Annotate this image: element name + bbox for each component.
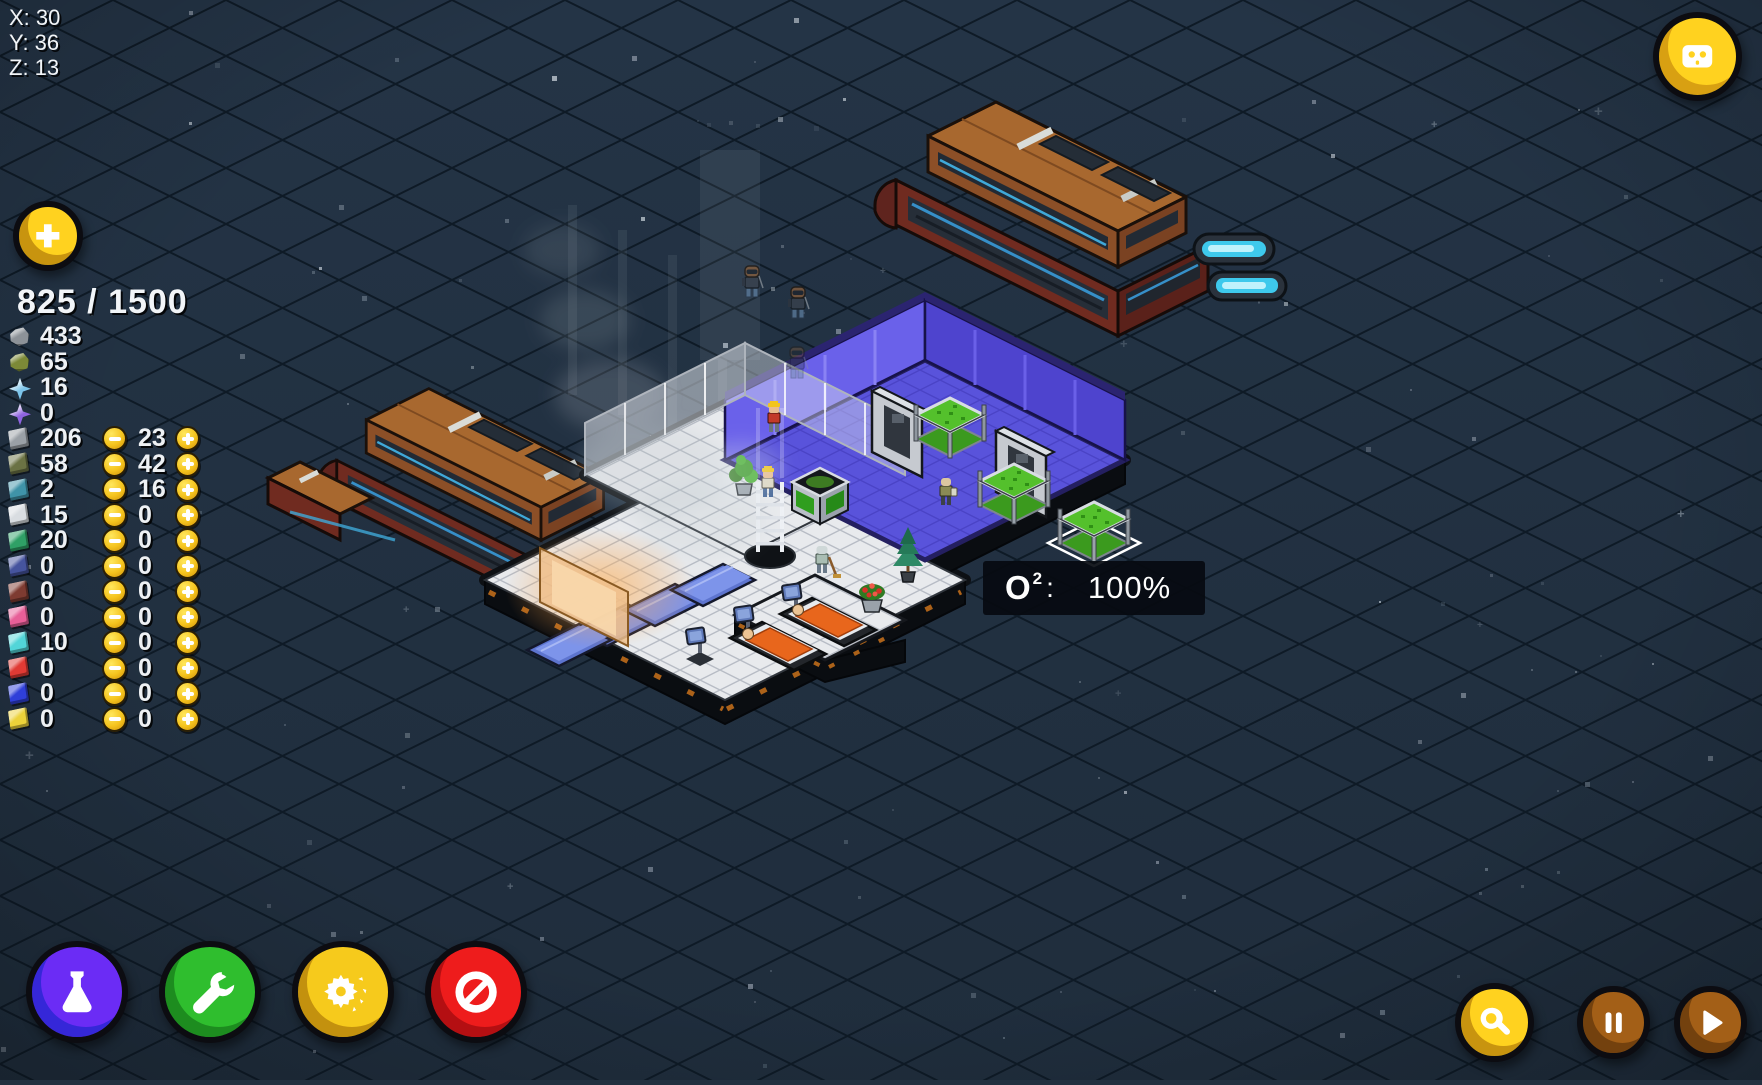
buy-coin-button[interactable]: [175, 605, 200, 630]
resource-row-organic-rock: 65: [8, 350, 200, 376]
resource-row-pink-plate: 0 0: [8, 605, 200, 631]
coordinate-y: Y: 36: [9, 30, 60, 55]
buy-coin-button[interactable]: [175, 477, 200, 502]
oxygen-value: 100%: [1088, 570, 1171, 606]
resource-icon: [8, 453, 32, 475]
sell-coin-button[interactable]: [102, 554, 127, 579]
pause-icon: [1596, 1005, 1631, 1040]
resource-row-gray-rock: 433: [8, 324, 200, 350]
resource-icon: [8, 555, 32, 577]
add-button[interactable]: [13, 201, 83, 271]
play-button[interactable]: [1674, 986, 1747, 1059]
resource-icon: [8, 326, 32, 348]
storage-capacity: 825 / 1500: [17, 283, 188, 322]
ban-icon: [450, 966, 502, 1018]
resource-icon: [8, 581, 32, 603]
sell-coin-button[interactable]: [102, 503, 127, 528]
sell-coin-button[interactable]: [102, 605, 127, 630]
flask-icon: [51, 966, 103, 1018]
resource-row-purple-crystal: 0: [8, 401, 200, 427]
resource-price: 0: [138, 705, 175, 734]
sell-coin-button[interactable]: [102, 681, 127, 706]
buy-coin-button[interactable]: [175, 579, 200, 604]
crew-button-slot: [1653, 12, 1742, 101]
magnifier-icon: [1475, 1003, 1514, 1042]
add-button-slot: [13, 201, 83, 271]
resource-icon: [8, 504, 32, 526]
build-button[interactable]: [159, 941, 261, 1043]
broken-gear-icon: [317, 966, 369, 1018]
buy-coin-button[interactable]: [175, 630, 200, 655]
resource-icon: [8, 351, 32, 373]
sell-coin-button[interactable]: [102, 630, 127, 655]
resource-icon: [8, 377, 32, 399]
buy-coin-button[interactable]: [175, 554, 200, 579]
resource-row-white-plate: 15 0: [8, 503, 200, 529]
resource-icon: [8, 657, 32, 679]
resource-row-cyan-plate: 10 0: [8, 630, 200, 656]
crew-button[interactable]: [1653, 12, 1742, 101]
sell-coin-button[interactable]: [102, 656, 127, 681]
resource-row-yellow-plate: 0 0: [8, 707, 200, 733]
coordinate-z: Z: 13: [9, 55, 60, 80]
research-button[interactable]: [26, 941, 128, 1043]
buy-coin-button[interactable]: [175, 707, 200, 732]
sell-coin-button[interactable]: [102, 452, 127, 477]
resource-row-olive-plate: 58 42: [8, 452, 200, 478]
buy-coin-button[interactable]: [175, 452, 200, 477]
oxygen-tooltip: O 2 : 100%: [983, 561, 1205, 615]
time-controls: [1577, 986, 1747, 1059]
resource-count: 0: [40, 705, 102, 734]
sell-coin-button[interactable]: [102, 579, 127, 604]
buy-coin-button[interactable]: [175, 528, 200, 553]
sell-coin-button[interactable]: [102, 426, 127, 451]
resource-icon: [8, 708, 32, 730]
resource-icon: [8, 428, 32, 450]
resource-icon: [8, 632, 32, 654]
coordinate-x: X: 30: [9, 5, 60, 30]
pause-button[interactable]: [1577, 986, 1650, 1059]
zoom-button[interactable]: [1455, 983, 1534, 1062]
cursor-coordinates: X: 30 Y: 36 Z: 13: [9, 5, 60, 80]
sell-coin-button[interactable]: [102, 707, 127, 732]
resource-icon: [8, 530, 32, 552]
sell-coin-button[interactable]: [102, 477, 127, 502]
resource-icon: [8, 683, 32, 705]
wrench-icon: [184, 966, 236, 1018]
resource-row-teal-plate: 2 16: [8, 477, 200, 503]
buy-coin-button[interactable]: [175, 656, 200, 681]
mine-button[interactable]: [292, 941, 394, 1043]
oxygen-symbol: O: [1005, 569, 1031, 607]
buy-coin-button[interactable]: [175, 681, 200, 706]
resource-row-blue-crystal: 16: [8, 375, 200, 401]
resource-trade: 0: [102, 705, 200, 734]
play-icon: [1693, 1005, 1728, 1040]
forbid-button[interactable]: [425, 941, 527, 1043]
buy-coin-button[interactable]: [175, 426, 200, 451]
resource-icon: [8, 402, 32, 424]
resource-icon: [8, 479, 32, 501]
oxygen-superscript: 2: [1033, 569, 1042, 589]
sell-coin-button[interactable]: [102, 528, 127, 553]
eva-crew-member[interactable]: [788, 287, 809, 318]
resource-row-blue-plate: 0 0: [8, 681, 200, 707]
resource-list: 433 65 16 0 206 23 58 42: [8, 324, 200, 732]
view-controls: [1455, 983, 1534, 1062]
resource-row-maroon-plate: 0 0: [8, 579, 200, 605]
resource-row-red-plate: 0 0: [8, 656, 200, 682]
resource-row-gray-plate: 206 23: [8, 426, 200, 452]
resource-icon: [8, 606, 32, 628]
robot-face-icon: [1675, 34, 1720, 79]
resource-row-navy-plate: 0 0: [8, 554, 200, 580]
resource-row-green-plate: 20 0: [8, 528, 200, 554]
buy-coin-button[interactable]: [175, 503, 200, 528]
plus-icon: [31, 219, 65, 253]
action-toolbar: [26, 941, 527, 1043]
